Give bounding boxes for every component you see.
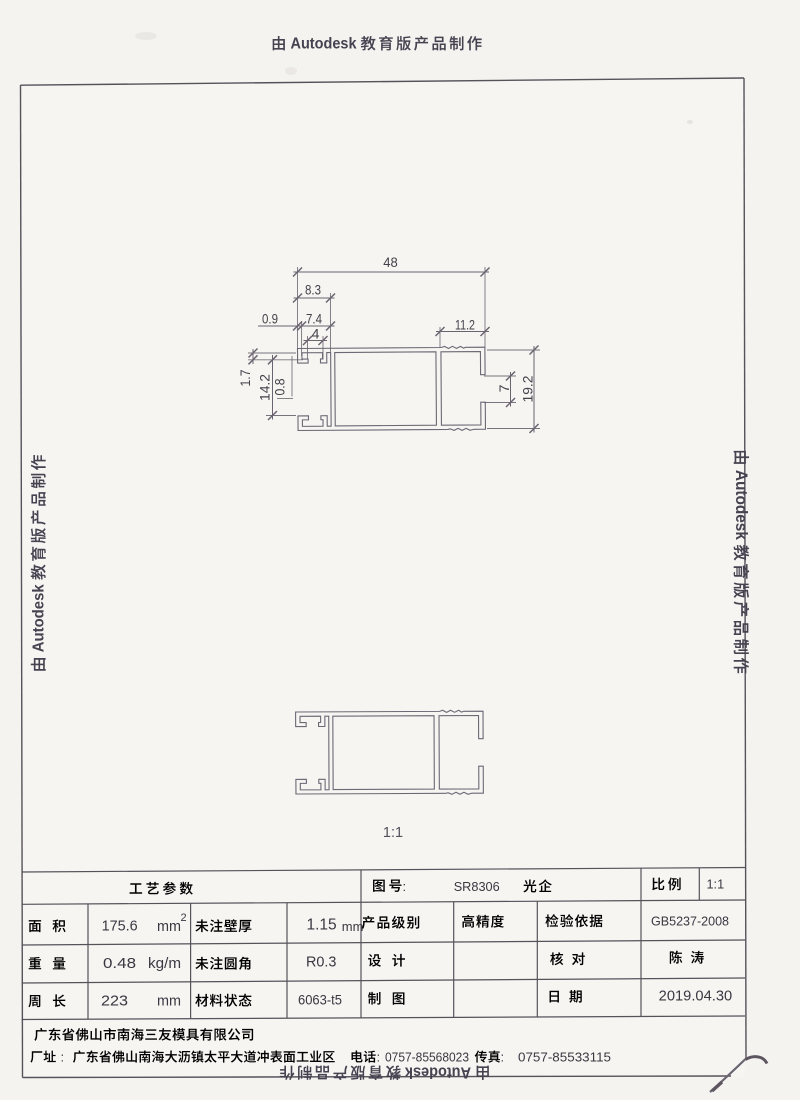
- svg-text:19.2: 19.2: [520, 375, 536, 402]
- svg-text:11.2: 11.2: [455, 317, 475, 333]
- svg-text:Autodesk: Autodesk: [405, 1064, 471, 1081]
- svg-text:1.7: 1.7: [237, 369, 253, 386]
- svg-text:0.9: 0.9: [262, 311, 278, 327]
- svg-text:175.6: 175.6: [102, 919, 138, 935]
- svg-text:48: 48: [383, 254, 398, 270]
- svg-text:1.15: 1.15: [307, 917, 337, 934]
- svg-text::: :: [61, 1050, 65, 1065]
- svg-text:223: 223: [101, 994, 128, 1010]
- svg-text:Autodesk: Autodesk: [732, 470, 750, 541]
- svg-text:7: 7: [496, 384, 512, 392]
- svg-text:Autodesk: Autodesk: [31, 584, 48, 652]
- svg-text:1:1: 1:1: [383, 825, 403, 841]
- svg-text:1:1: 1:1: [707, 878, 725, 892]
- svg-text:6063-t5: 6063-t5: [298, 993, 342, 1008]
- svg-text:R0.3: R0.3: [306, 955, 336, 971]
- svg-text:mm: mm: [157, 919, 181, 935]
- svg-text:GB5237-2008: GB5237-2008: [651, 914, 729, 929]
- svg-text:Autodesk: Autodesk: [291, 36, 357, 53]
- svg-text:4: 4: [312, 326, 320, 342]
- svg-text:SR8306: SR8306: [454, 879, 500, 894]
- svg-text:7.4: 7.4: [306, 311, 322, 327]
- svg-text:0757-85533115: 0757-85533115: [518, 1050, 611, 1065]
- svg-text:2019.04.30: 2019.04.30: [659, 989, 733, 1005]
- svg-text:mm: mm: [157, 994, 181, 1010]
- svg-text:kg/m: kg/m: [148, 956, 181, 972]
- svg-text:8.3: 8.3: [305, 282, 321, 298]
- svg-text:14.2: 14.2: [257, 374, 273, 401]
- svg-text:0.48: 0.48: [103, 956, 136, 972]
- svg-text:0.8: 0.8: [272, 378, 288, 395]
- svg-text::: :: [377, 1050, 381, 1065]
- svg-text:2: 2: [181, 912, 187, 924]
- svg-text::: :: [403, 879, 407, 894]
- svg-text::: :: [501, 1050, 505, 1065]
- svg-text:0757-85568023: 0757-85568023: [385, 1050, 469, 1065]
- svg-text:mm: mm: [342, 919, 364, 934]
